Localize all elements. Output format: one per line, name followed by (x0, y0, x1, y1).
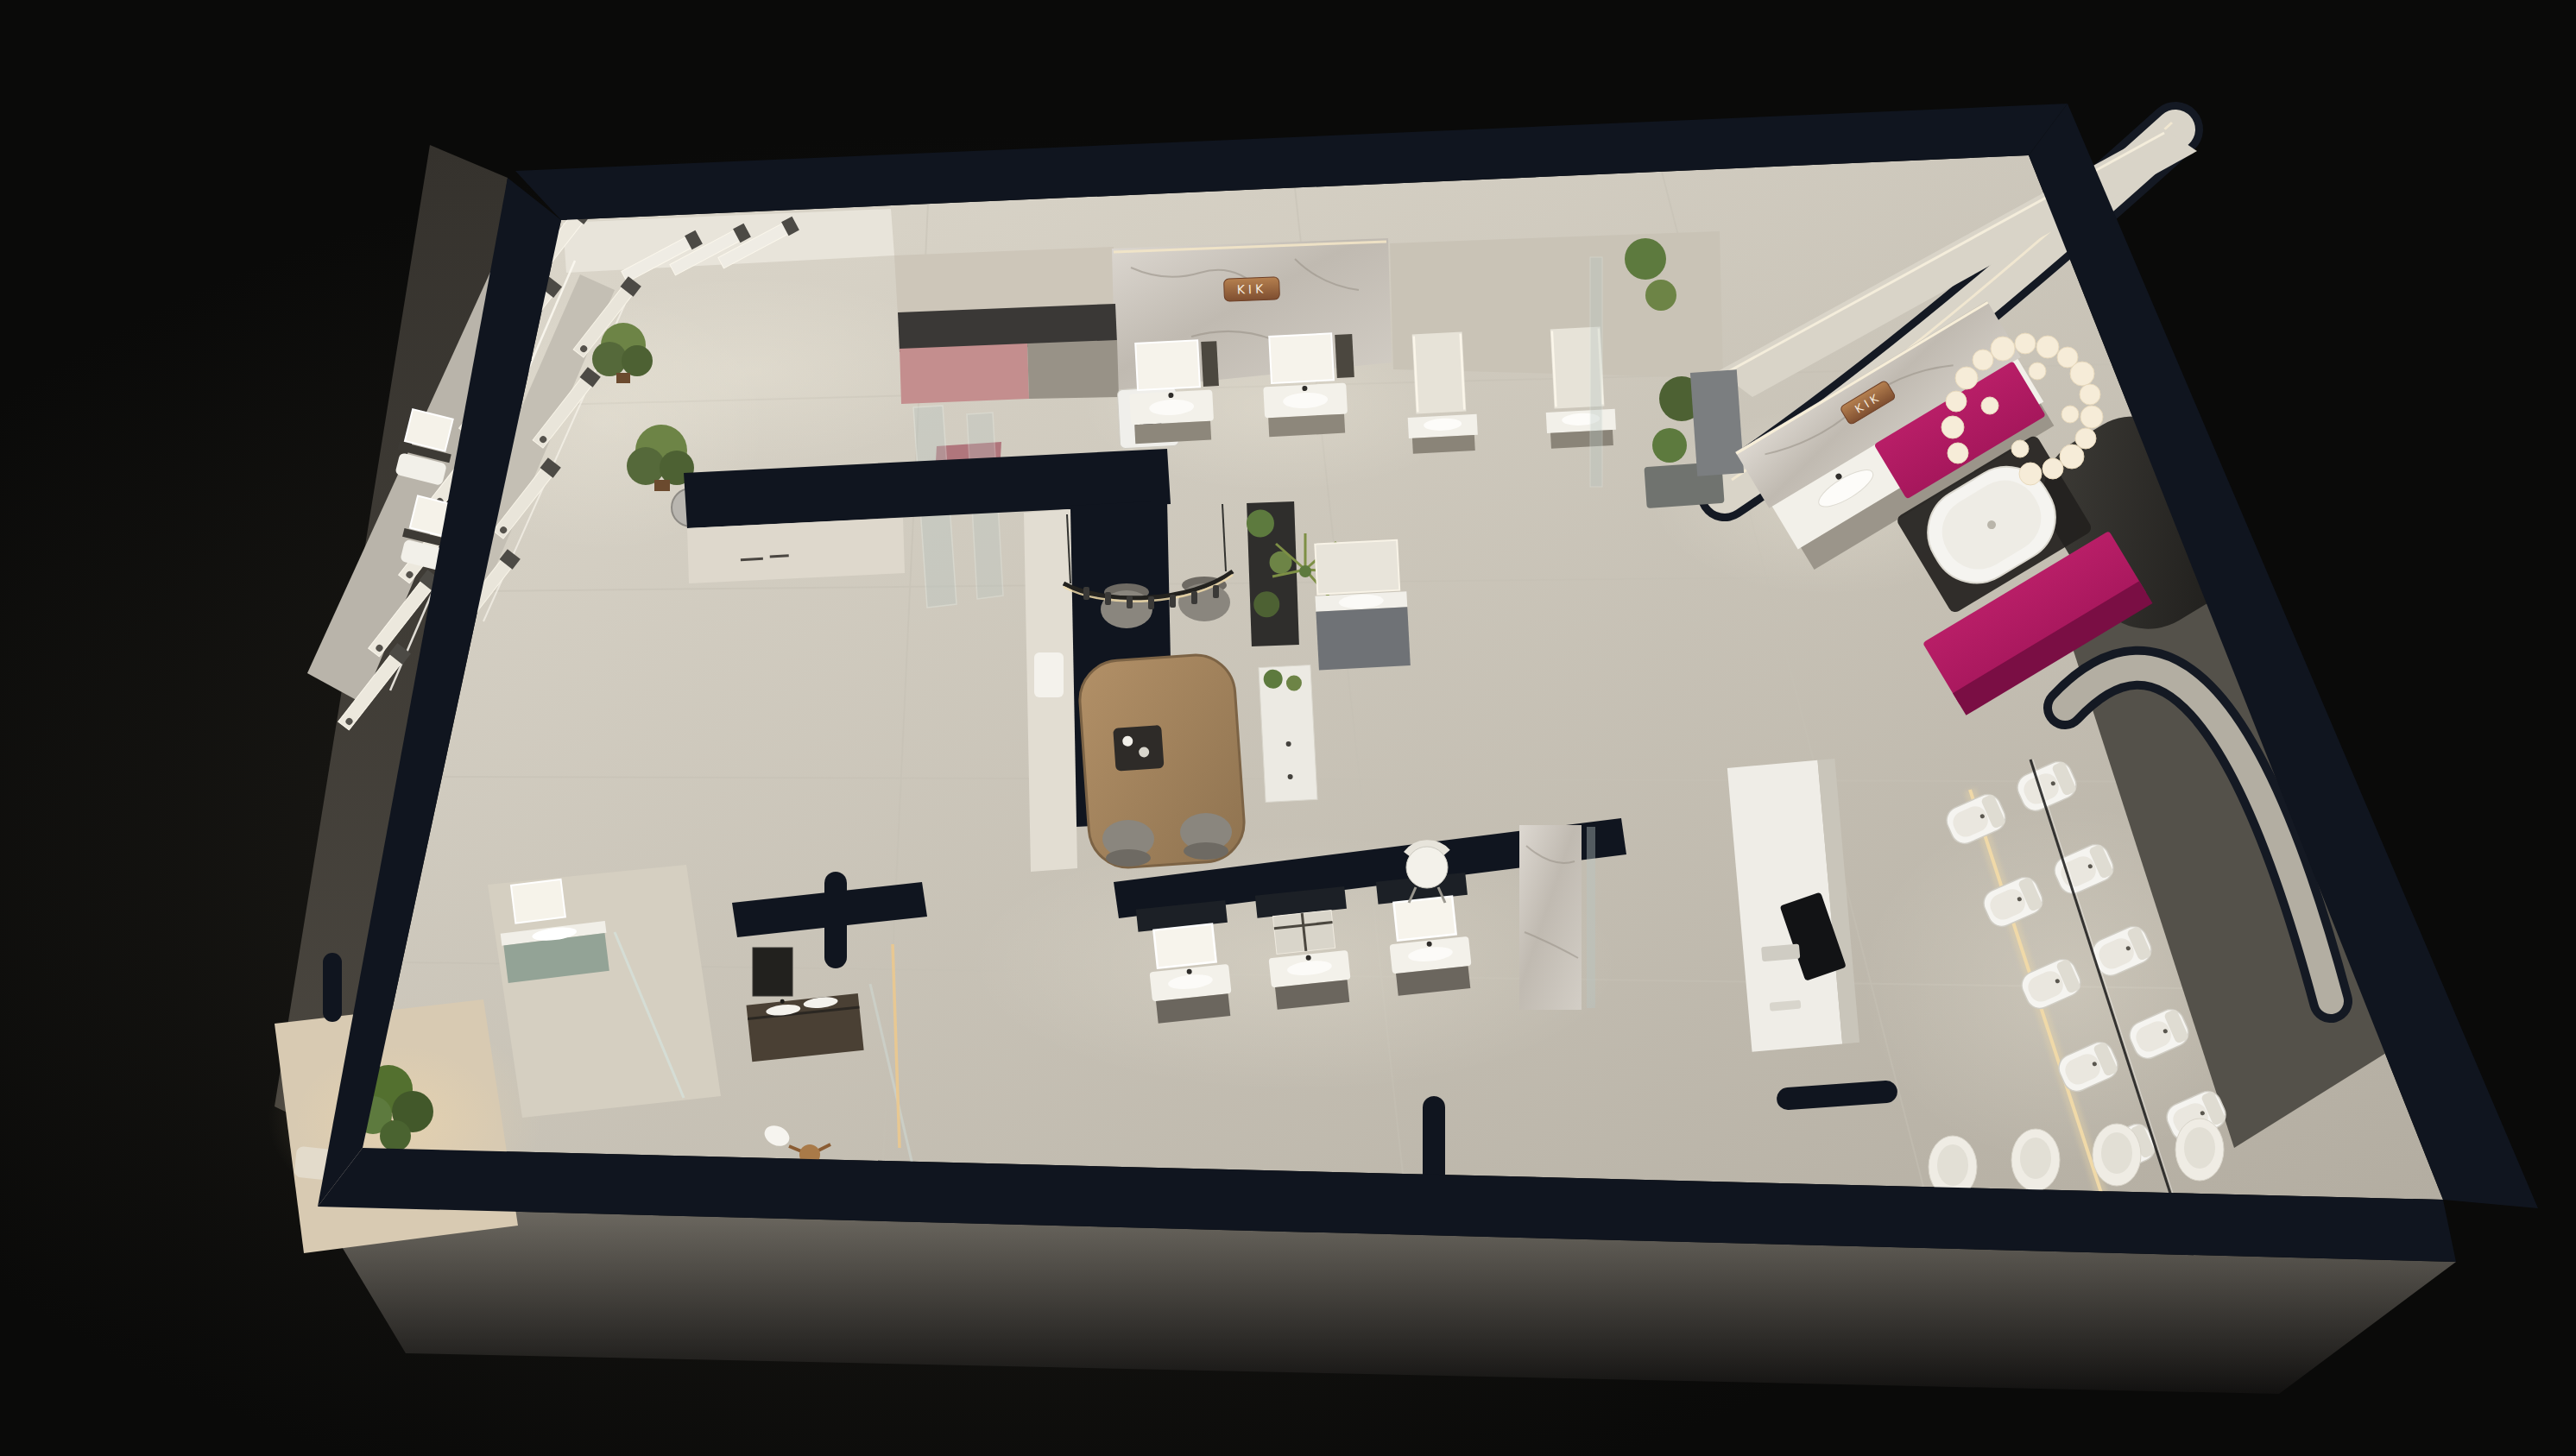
plant-shelf-divider (1246, 501, 1299, 646)
showroom-render: KIK (0, 0, 2576, 1456)
wall-stub (323, 953, 342, 1022)
glass-pane (1590, 257, 1602, 487)
led-mirror (1153, 924, 1215, 968)
plant (1645, 280, 1676, 311)
gray-vanity-east-of-table (1312, 539, 1410, 670)
wall-stub (824, 872, 847, 968)
led-mirror (1269, 333, 1334, 383)
dining-chair (1178, 577, 1230, 621)
led-mirror (1393, 897, 1455, 941)
wall-hung-toilet (2175, 1119, 2224, 1181)
dark-mirror (753, 948, 792, 996)
sage-bathroom-mockup (488, 865, 721, 1118)
dining-chair (1102, 820, 1154, 867)
gray-cabinet (1690, 369, 1744, 476)
wall-hung-toilet (2011, 1129, 2060, 1191)
isometric-showroom-scene: KIK (0, 0, 2576, 1456)
plant (1652, 428, 1687, 463)
leg-face-basin (1034, 652, 1064, 697)
led-mirror (1135, 340, 1200, 390)
beige-counter (1027, 340, 1119, 399)
l-wall-front-face (687, 518, 905, 583)
brand-sign-north: KIK (1224, 277, 1280, 301)
brand-sign-north-text: KIK (1236, 281, 1266, 296)
plant-room-mockup (275, 999, 518, 1253)
plant (1625, 238, 1666, 280)
island-planter-basin (1259, 665, 1317, 802)
decor-tray (1113, 725, 1164, 772)
dining-chair (1180, 813, 1232, 860)
wall-hung-toilet (2093, 1124, 2141, 1186)
glass-pane (1587, 827, 1595, 1008)
pink-counter-top (900, 344, 1029, 404)
mirror (511, 879, 565, 923)
